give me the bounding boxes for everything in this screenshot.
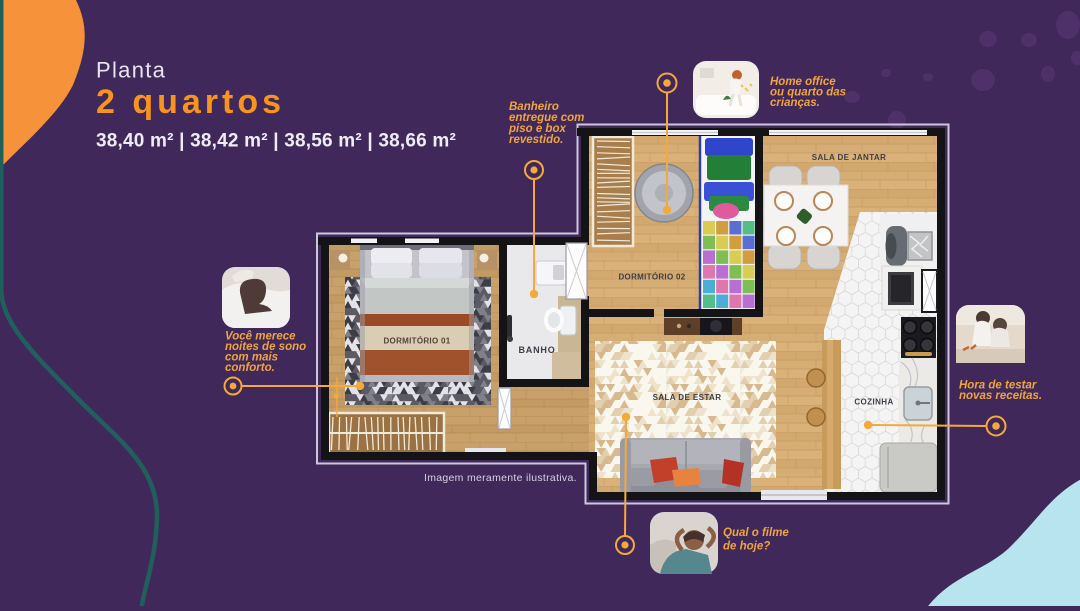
svg-text:revestido.: revestido. [509, 134, 563, 146]
svg-text:de hoje?: de hoje? [723, 541, 770, 553]
svg-text:Qual o filme: Qual o filme [723, 527, 789, 539]
svg-text:COZINHA: COZINHA [854, 398, 893, 407]
svg-text:SALA DE JANTAR: SALA DE JANTAR [812, 153, 887, 162]
svg-text:novas receitas.: novas receitas. [959, 390, 1042, 402]
svg-text:2 quartos: 2 quartos [96, 83, 285, 121]
svg-text:DORMITÓRIO 02: DORMITÓRIO 02 [618, 273, 685, 282]
svg-text:SALA DE ESTAR: SALA DE ESTAR [653, 393, 722, 402]
svg-text:Planta: Planta [96, 58, 166, 83]
svg-text:Imagem meramente ilustrativa.: Imagem meramente ilustrativa. [424, 472, 577, 484]
svg-text:38,40 m² | 38,42 m² | 38,56 m²: 38,40 m² | 38,42 m² | 38,56 m² | 38,66 m… [96, 131, 456, 152]
svg-text:BANHO: BANHO [519, 345, 556, 355]
svg-text:DORMITÓRIO 01: DORMITÓRIO 01 [383, 337, 450, 346]
svg-text:conforto.: conforto. [225, 362, 275, 374]
svg-text:crianças.: crianças. [770, 97, 820, 109]
